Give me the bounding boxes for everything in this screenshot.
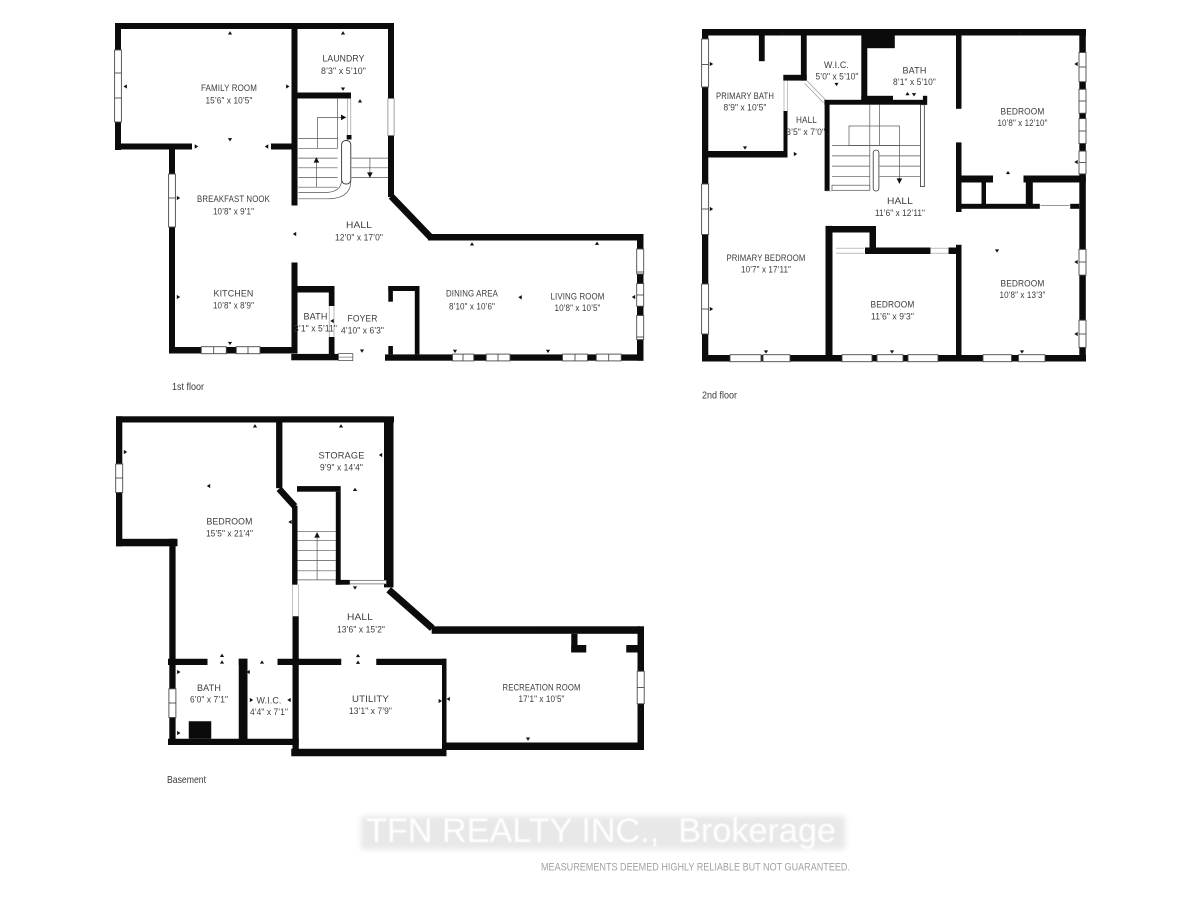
svg-text:LAUNDRY: LAUNDRY <box>323 54 365 64</box>
svg-text:RECREATION ROOM: RECREATION ROOM <box>503 683 581 693</box>
svg-text:15’6" x 10’5": 15’6" x 10’5" <box>206 96 253 106</box>
svg-text:MEASUREMENTS DEEMED HIGHLY REL: MEASUREMENTS DEEMED HIGHLY RELIABLE BUT … <box>541 862 850 874</box>
svg-text:3’1" x 5’11": 3’1" x 5’11" <box>294 324 337 334</box>
svg-text:9’9" x 14’4": 9’9" x 14’4" <box>320 463 363 473</box>
svg-text:BATH: BATH <box>903 66 927 76</box>
svg-text:HALL: HALL <box>796 115 817 125</box>
svg-text:PRIMARY BEDROOM: PRIMARY BEDROOM <box>727 253 806 263</box>
svg-text:BATH: BATH <box>197 683 221 693</box>
svg-text:LIVING ROOM: LIVING ROOM <box>551 292 605 302</box>
svg-text:10’8" x 10’5": 10’8" x 10’5" <box>555 303 601 313</box>
svg-text:10’8" x 12’10": 10’8" x 12’10" <box>998 118 1048 128</box>
svg-text:BREAKFAST NOOK: BREAKFAST NOOK <box>197 194 271 204</box>
svg-text:6’0" x 7’1": 6’0" x 7’1" <box>190 695 228 705</box>
svg-text:10’8" x 8’9": 10’8" x 8’9" <box>213 301 254 311</box>
svg-text:BEDROOM: BEDROOM <box>207 517 253 527</box>
svg-text:15’5" x 21’4": 15’5" x 21’4" <box>206 529 253 539</box>
svg-text:STORAGE: STORAGE <box>319 451 365 461</box>
svg-text:HALL: HALL <box>887 196 913 206</box>
svg-text:DINING AREA: DINING AREA <box>446 289 499 299</box>
svg-text:FAMILY ROOM: FAMILY ROOM <box>201 83 257 93</box>
svg-text:3’5" x 7’0": 3’5" x 7’0" <box>786 127 825 137</box>
svg-text:10’7" x 17’11": 10’7" x 17’11" <box>741 265 791 275</box>
svg-text:W.I.C.: W.I.C. <box>257 696 282 706</box>
svg-text:BEDROOM: BEDROOM <box>1001 107 1045 117</box>
svg-text:4’10" x 6’3": 4’10" x 6’3" <box>341 326 384 336</box>
svg-text:8’9" x 10’5": 8’9" x 10’5" <box>724 103 767 113</box>
svg-text:8’10" x 10’6": 8’10" x 10’6" <box>449 302 495 312</box>
svg-text:13’6" x 15’2": 13’6" x 15’2" <box>337 625 385 635</box>
svg-text:11’6" x 12’11": 11’6" x 12’11" <box>875 208 925 218</box>
svg-text:17’1" x 10’5": 17’1" x 10’5" <box>519 694 565 704</box>
svg-text:BATH: BATH <box>304 312 328 322</box>
svg-text:UTILITY: UTILITY <box>352 694 389 704</box>
svg-text:1st floor: 1st floor <box>172 381 204 393</box>
svg-text:HALL: HALL <box>347 612 373 622</box>
svg-text:KITCHEN: KITCHEN <box>214 289 254 299</box>
svg-text:TFN REALTY INC., Brokerage: TFN REALTY INC., Brokerage <box>366 812 836 850</box>
svg-text:BEDROOM: BEDROOM <box>1001 279 1045 289</box>
svg-text:BEDROOM: BEDROOM <box>871 300 915 310</box>
svg-text:11’6" x 9’3": 11’6" x 9’3" <box>871 312 914 322</box>
svg-text:10’8" x 13’3": 10’8" x 13’3" <box>1000 290 1046 300</box>
svg-text:8’3" x 5’10": 8’3" x 5’10" <box>321 66 366 76</box>
svg-text:13’1" x 7’9": 13’1" x 7’9" <box>349 706 392 716</box>
svg-text:2nd floor: 2nd floor <box>702 390 737 402</box>
svg-text:10’8" x 9’1": 10’8" x 9’1" <box>213 207 254 217</box>
svg-text:PRIMARY BATH: PRIMARY BATH <box>716 91 774 101</box>
svg-text:5’0" x 5’10": 5’0" x 5’10" <box>816 72 859 82</box>
svg-text:W.I.C.: W.I.C. <box>824 60 849 70</box>
svg-text:FOYER: FOYER <box>348 314 378 324</box>
svg-text:HALL: HALL <box>346 220 372 230</box>
svg-text:12’0" x 17’0": 12’0" x 17’0" <box>335 233 383 243</box>
svg-text:8’1" x 5’10": 8’1" x 5’10" <box>893 77 936 87</box>
svg-text:Basement: Basement <box>167 774 206 786</box>
svg-text:4’4" x 7’1": 4’4" x 7’1" <box>250 707 288 717</box>
